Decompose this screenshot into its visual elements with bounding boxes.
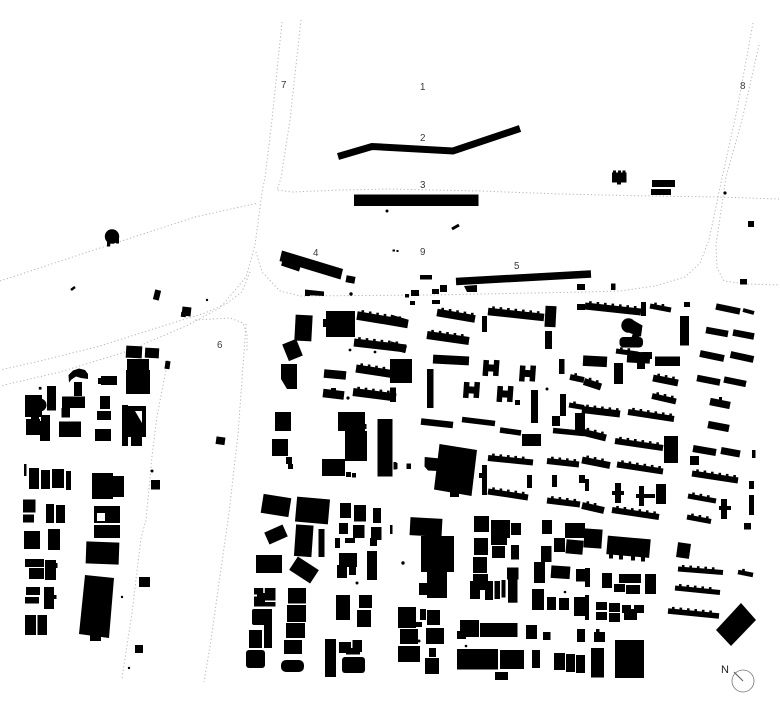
svg-text:1: 1 — [420, 82, 425, 93]
svg-text:6: 6 — [217, 340, 223, 351]
svg-text:2: 2 — [420, 133, 425, 144]
svg-text:3: 3 — [420, 180, 426, 191]
svg-text:N: N — [721, 664, 729, 676]
svg-text:4: 4 — [313, 248, 319, 259]
svg-text:9: 9 — [420, 247, 425, 258]
svg-text:5: 5 — [514, 261, 520, 272]
svg-text:7: 7 — [281, 80, 286, 91]
svg-text:8: 8 — [740, 81, 746, 92]
